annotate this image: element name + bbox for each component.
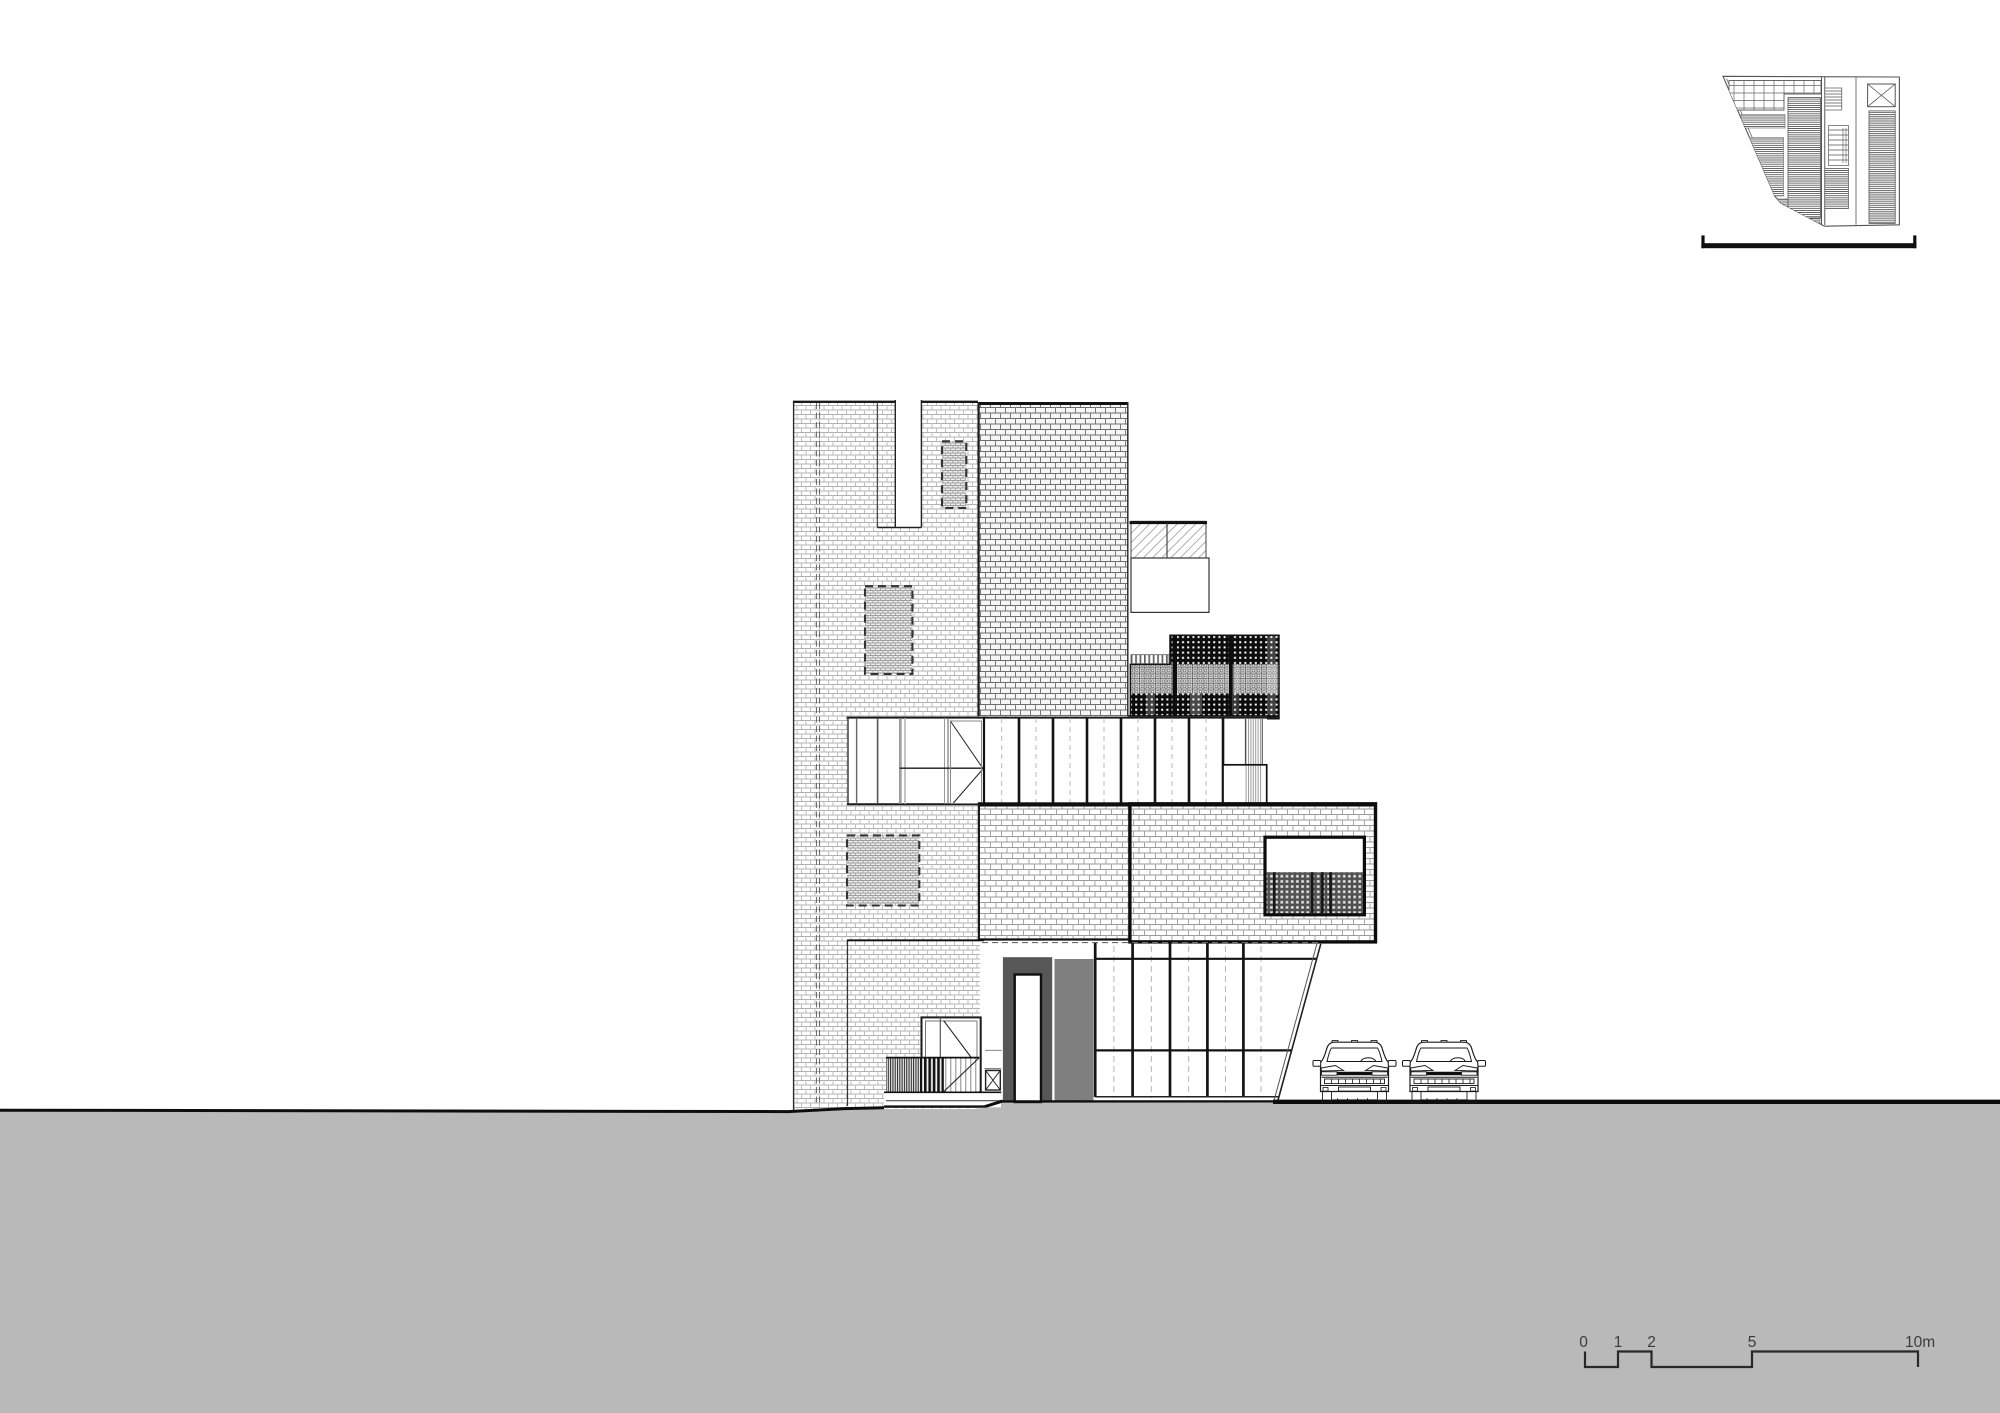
- svg-text:10m: 10m: [1905, 1334, 1935, 1351]
- svg-text:0: 0: [1579, 1334, 1588, 1351]
- svg-text:1: 1: [1614, 1334, 1623, 1351]
- svg-text:5: 5: [1748, 1334, 1757, 1351]
- svg-text:2: 2: [1647, 1334, 1656, 1351]
